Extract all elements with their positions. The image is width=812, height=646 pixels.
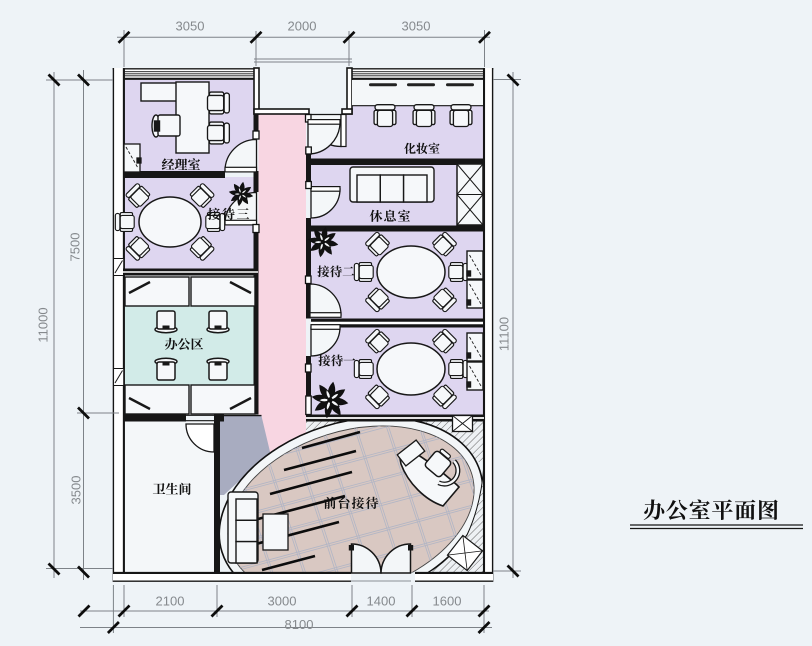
svg-text:3500: 3500: [68, 476, 83, 505]
svg-text:8100: 8100: [285, 617, 314, 632]
svg-text:11100: 11100: [496, 317, 511, 351]
svg-text:7500: 7500: [67, 233, 82, 262]
svg-text:2100: 2100: [156, 593, 185, 608]
svg-text:3050: 3050: [176, 18, 205, 33]
svg-text:1600: 1600: [433, 593, 462, 608]
svg-text:2000: 2000: [288, 18, 317, 33]
svg-text:3050: 3050: [402, 18, 431, 33]
svg-text:11000: 11000: [35, 307, 50, 342]
svg-text:3000: 3000: [268, 593, 297, 608]
svg-text:1400: 1400: [367, 593, 396, 608]
